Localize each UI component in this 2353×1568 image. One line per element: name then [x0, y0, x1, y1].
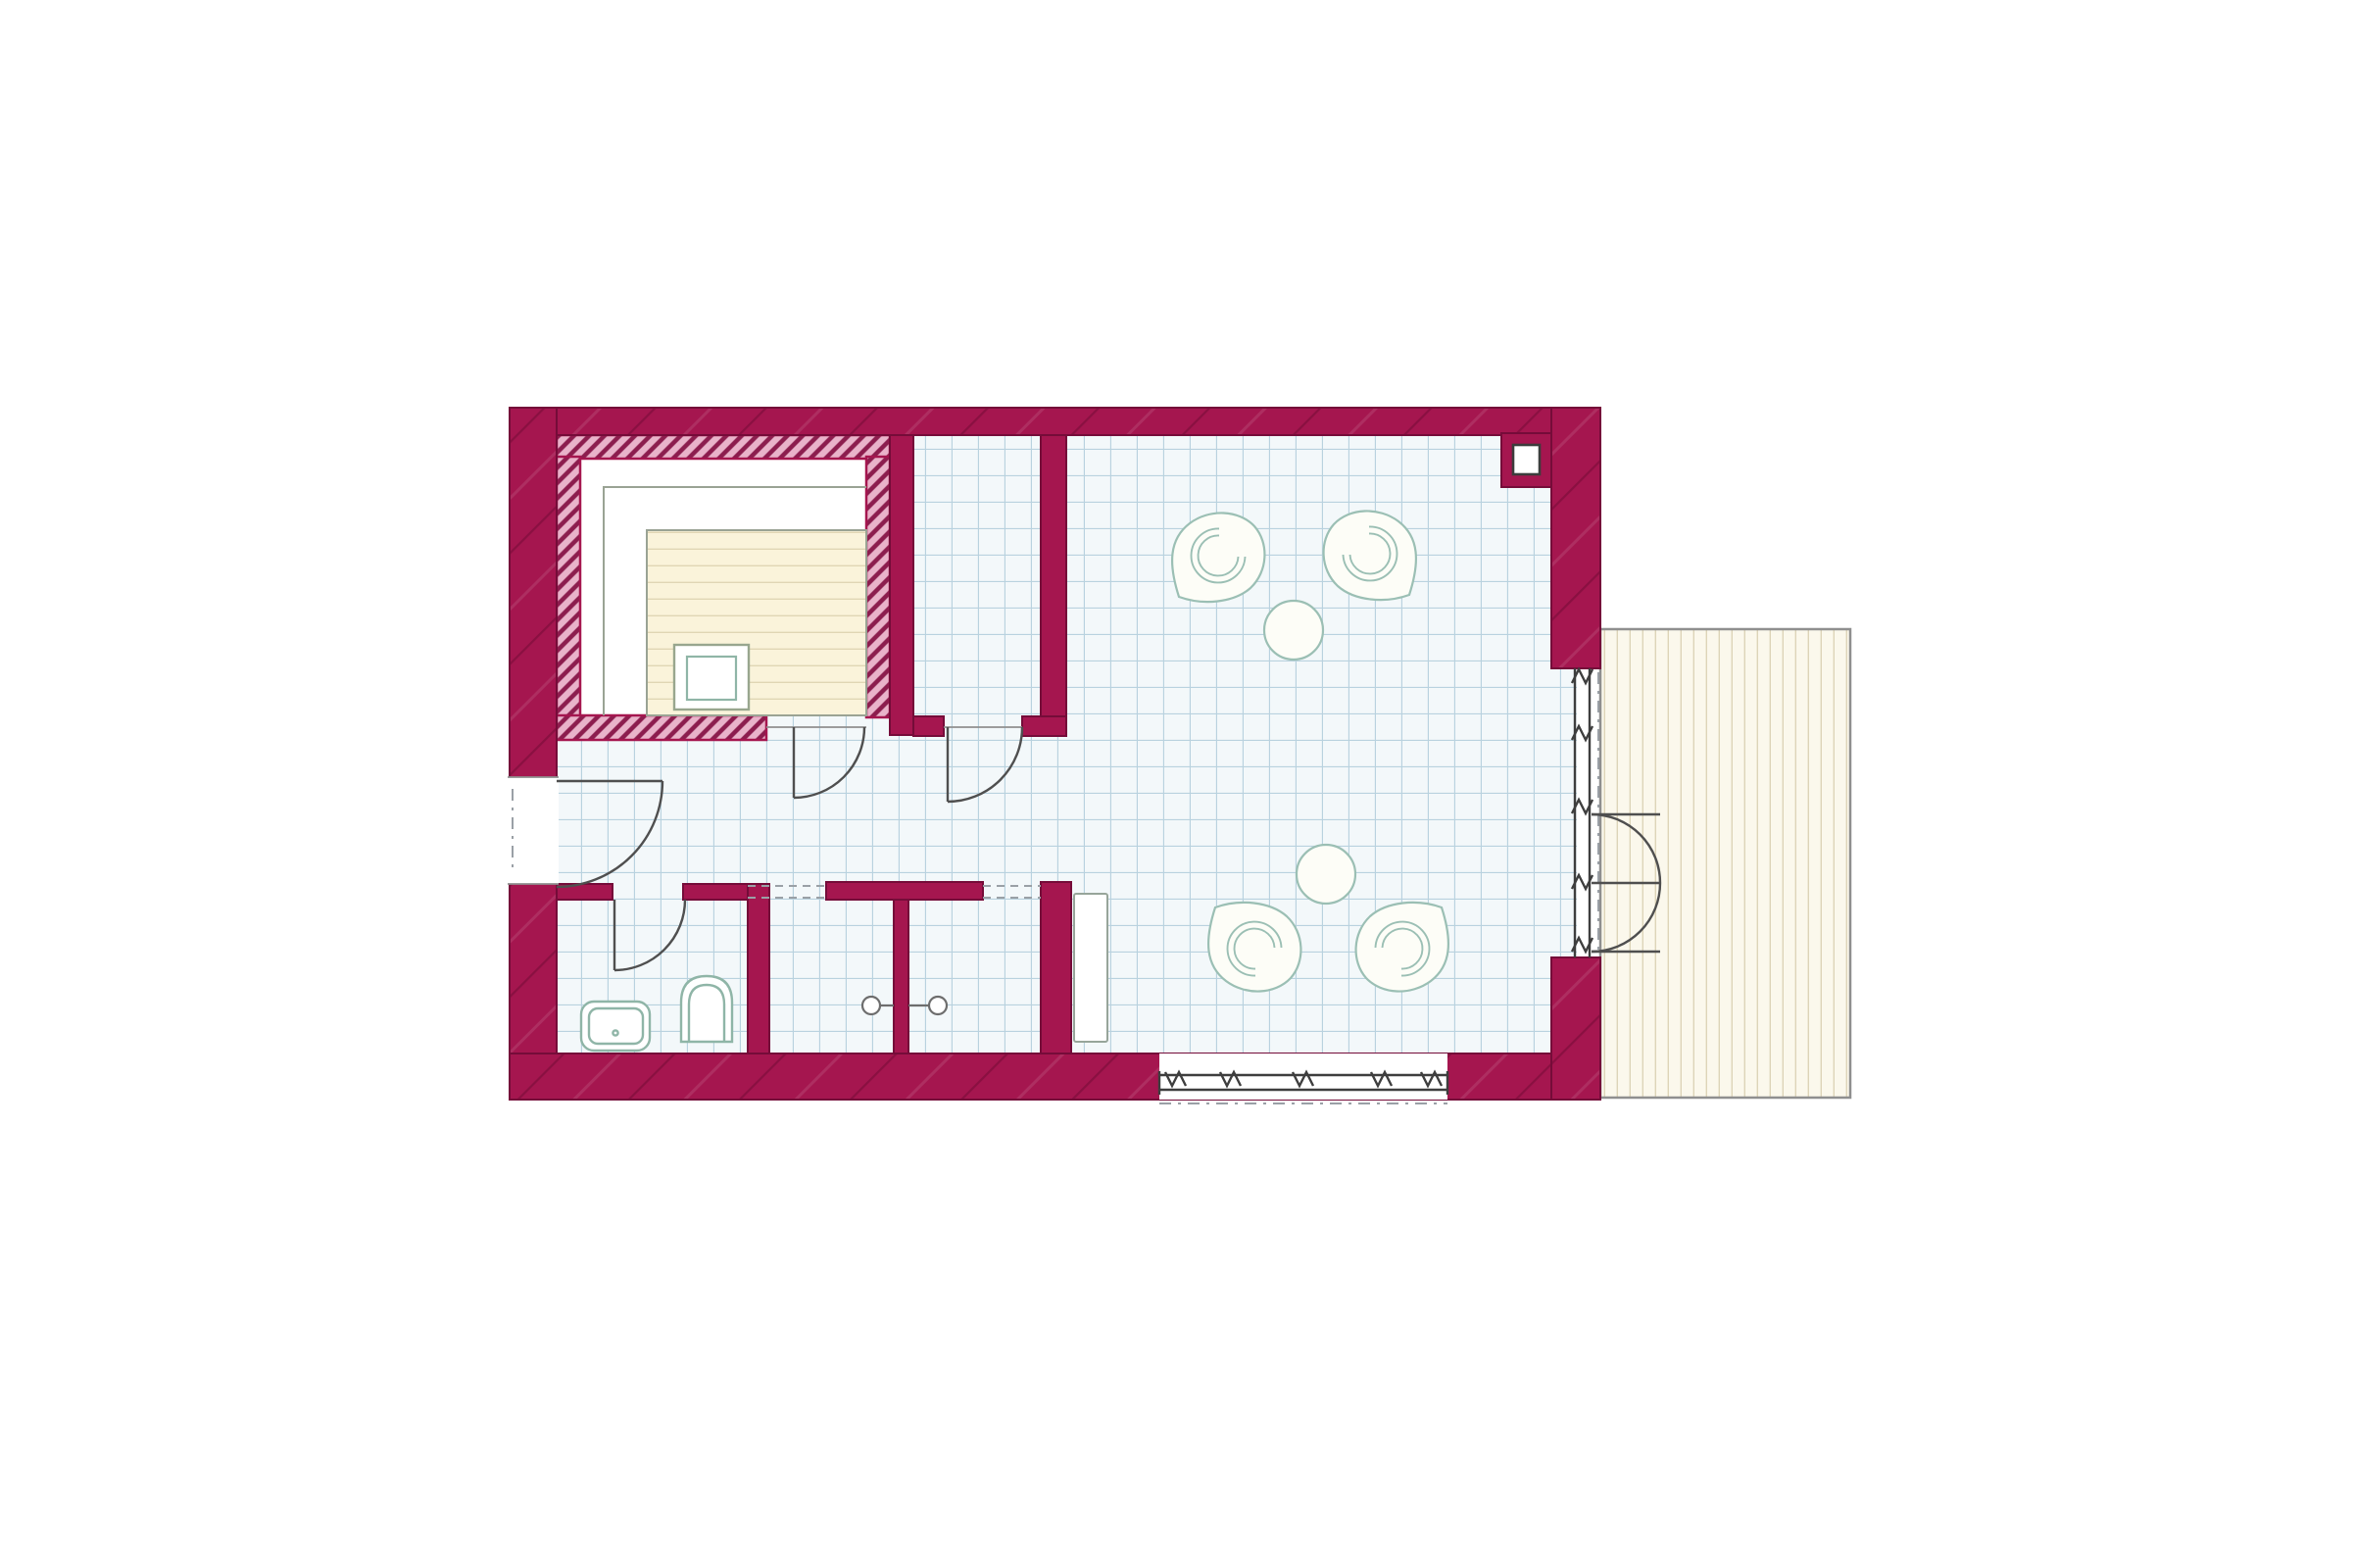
wall-shower-lounge: [1041, 882, 1071, 1053]
wall-west: [510, 408, 557, 1100]
floor-plan-canvas: [0, 0, 2353, 1568]
tub-chair: [1324, 511, 1416, 600]
sauna-lining-right: [866, 457, 890, 717]
wall-shower-partition: [894, 900, 908, 1053]
wall-north: [510, 408, 1600, 435]
sauna-lining-top: [557, 435, 890, 459]
wall-sauna-vestibule: [890, 435, 913, 735]
wall-bath-shower: [748, 884, 769, 1053]
round-table: [1297, 845, 1355, 904]
wall-vestibule-south-b: [1022, 716, 1066, 736]
floor-plan: [0, 0, 2353, 1568]
chimney-flue: [1513, 445, 1540, 474]
round-table: [1264, 601, 1323, 660]
wall-shower-north: [826, 882, 983, 900]
wall-bath-north-b: [683, 884, 748, 900]
washbasin: [581, 1002, 650, 1051]
chimney: [1501, 433, 1551, 487]
tub-chair: [1172, 513, 1264, 602]
sauna-lining-left: [557, 457, 580, 717]
wall-east-lower: [1551, 957, 1600, 1100]
wall-vestibule-lounge: [1041, 435, 1066, 735]
terrace-deck: [1600, 629, 1850, 1098]
tub-chair: [1356, 903, 1448, 992]
sauna-lining-bottom: [557, 715, 766, 740]
wall-panel: [1074, 894, 1107, 1042]
tub-chair: [1208, 903, 1300, 992]
wall-vestibule-south-a: [913, 716, 944, 736]
wall-east-upper: [1551, 408, 1600, 668]
sauna: [557, 435, 890, 740]
sauna-heater: [674, 645, 749, 710]
east-glazed-wall: [1572, 668, 1598, 957]
entrance-opening: [508, 777, 559, 884]
toilet: [681, 976, 732, 1042]
